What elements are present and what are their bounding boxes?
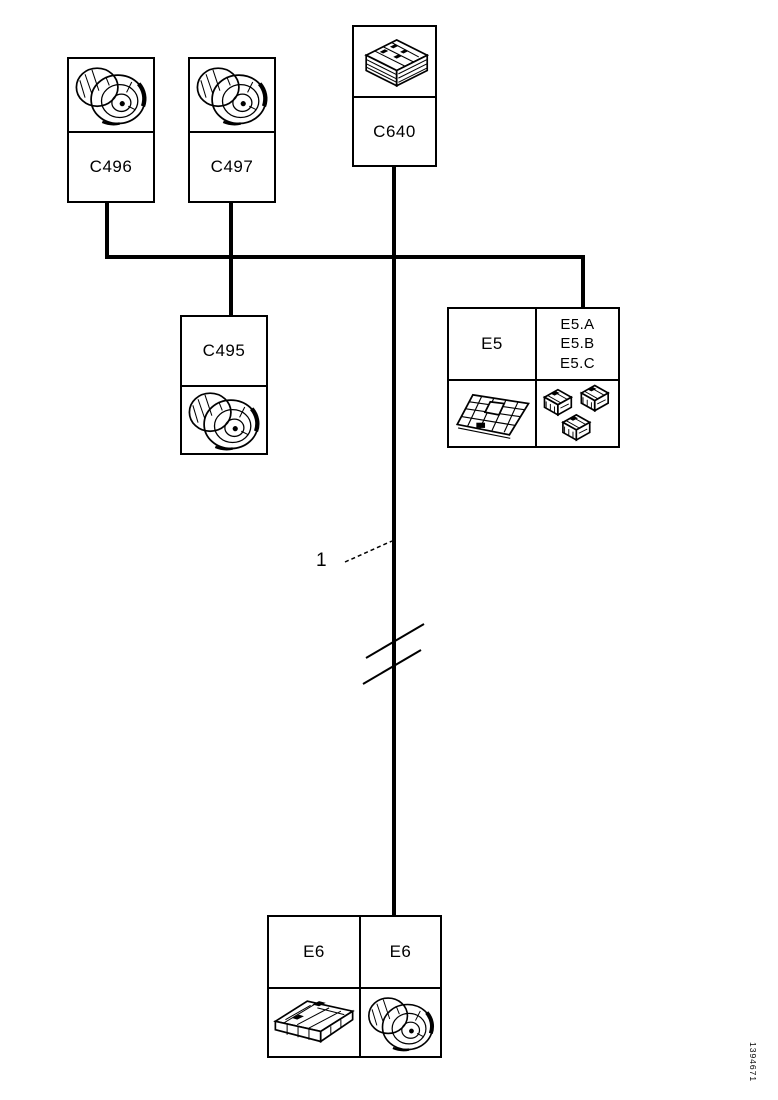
variant-label-e5b: E5.B: [560, 334, 595, 354]
doc-id-text: 1394671: [748, 1042, 758, 1082]
connector-label-c495: C495: [182, 317, 266, 385]
wire-bus-to-e5: [105, 257, 583, 308]
module-frame-icon: [449, 381, 535, 446]
connector-node-c497: C497: [188, 57, 276, 203]
wiring-harness-diagram: C496 C497 C640 C495 E5 E5: [0, 0, 778, 1100]
wire-break-mark-2: [363, 650, 421, 684]
module-frame-icon: [449, 379, 535, 446]
callout-1-label: 1: [316, 550, 327, 572]
ecu-module-icon: [269, 987, 359, 1056]
connector-label-c497: C497: [190, 131, 274, 201]
connector-node-c640: C640: [352, 25, 437, 167]
connector-node-c496: C496: [67, 57, 155, 203]
component-node-e6: E6 E6: [267, 915, 442, 1058]
variant-label-e5a: E5.A: [560, 315, 595, 335]
round-connector-icon: [190, 59, 274, 131]
component-variants-e5: E5.A E5.B E5.C: [535, 309, 618, 379]
block-connector-icon: [354, 27, 435, 96]
component-node-e5: E5 E5.A E5.B E5.C: [447, 307, 620, 448]
round-connector-icon: [190, 59, 274, 131]
connector-label-c496: C496: [69, 131, 153, 201]
connector-node-c495: C495: [180, 315, 268, 455]
round-connector-icon: [182, 385, 266, 453]
triple-connector-icon: [535, 379, 618, 446]
component-label-e6-right: E6: [359, 917, 440, 987]
component-label-e5: E5: [449, 309, 535, 379]
round-connector-icon: [359, 987, 440, 1056]
triple-connector-icon: [537, 381, 618, 446]
ecu-module-icon: [269, 989, 359, 1056]
round-connector-icon: [182, 387, 266, 453]
variant-label-e5c: E5.C: [560, 354, 595, 374]
round-connector-icon: [361, 989, 440, 1056]
component-label-e6-left: E6: [269, 917, 359, 987]
block-connector-icon: [354, 27, 435, 96]
connector-label-c640: C640: [354, 96, 435, 165]
round-connector-icon: [69, 59, 153, 131]
callout-leader-line: [345, 541, 392, 562]
wire-break-mark-1: [366, 624, 424, 658]
round-connector-icon: [69, 59, 153, 131]
